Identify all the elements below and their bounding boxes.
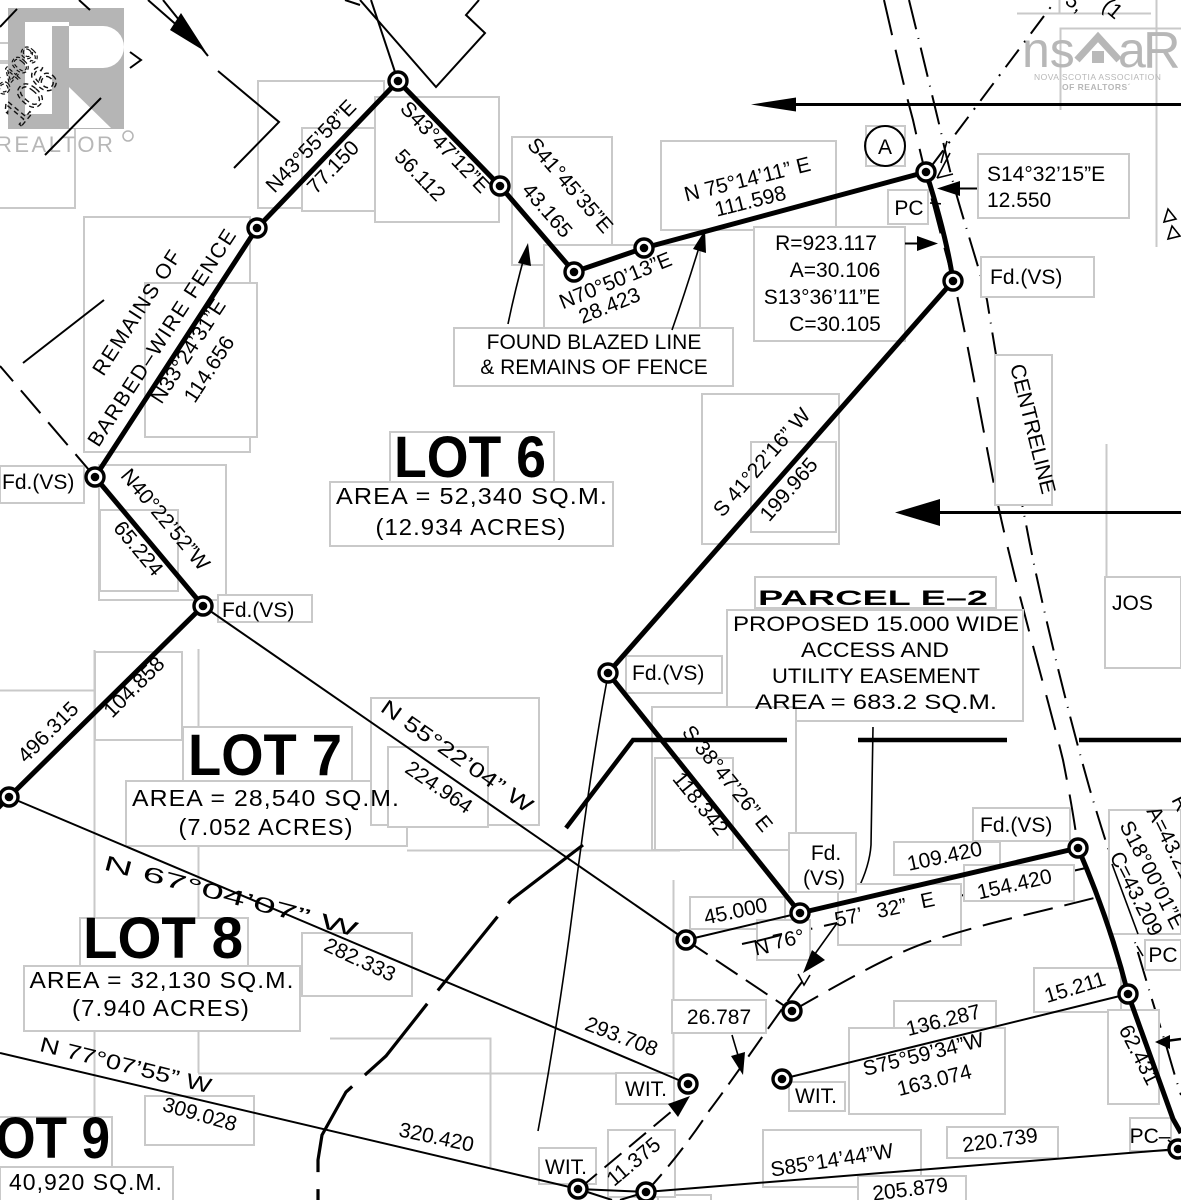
svg-text:ns: ns (1022, 22, 1075, 78)
svg-text:LOT 6: LOT 6 (394, 425, 546, 490)
svg-text:ACCESS AND: ACCESS AND (801, 639, 949, 662)
svg-text:S13°36’11”E: S13°36’11”E (764, 286, 881, 309)
svg-text:WIT.: WIT. (795, 1085, 837, 1108)
svg-text:LOT 9: LOT 9 (0, 1106, 110, 1171)
svg-text:AREA = 683.2 SQ.M.: AREA = 683.2 SQ.M. (755, 691, 997, 714)
svg-text:UTILITY EASEMENT: UTILITY EASEMENT (772, 665, 980, 688)
svg-text:Fd.(VS): Fd.(VS) (632, 662, 704, 685)
svg-text:WIT.: WIT. (625, 1078, 667, 1101)
svg-text:R=923.117: R=923.117 (775, 232, 877, 255)
svg-text:A: A (878, 136, 892, 159)
svg-text:(7.940 ACRES): (7.940 ACRES) (72, 995, 250, 1021)
svg-text:Fd.(VS): Fd.(VS) (222, 599, 294, 622)
svg-text:JOS: JOS (1112, 592, 1153, 615)
svg-text:FOUND BLAZED LINE: FOUND BLAZED LINE (487, 331, 702, 354)
svg-text:A=30.106: A=30.106 (790, 259, 881, 282)
svg-text:REALTOR: REALTOR (0, 132, 115, 157)
svg-text:(VS): (VS) (803, 867, 845, 890)
svg-text:& REMAINS OF FENCE: & REMAINS OF FENCE (480, 356, 708, 379)
svg-text:(12.934 ACRES): (12.934 ACRES) (376, 514, 567, 540)
svg-text:PC–: PC– (1130, 1125, 1171, 1148)
svg-text:AREA = 32,130 SQ.M.: AREA = 32,130 SQ.M. (30, 967, 295, 993)
svg-text:(7.052 ACRES): (7.052 ACRES) (179, 814, 354, 840)
svg-text:12.550: 12.550 (987, 189, 1051, 212)
svg-text:AREA = 28,540 SQ.M.: AREA = 28,540 SQ.M. (132, 785, 400, 811)
svg-text:40,920 SQ.M.: 40,920 SQ.M. (9, 1169, 163, 1195)
svg-text:WIT.: WIT. (545, 1156, 587, 1179)
svg-text:PARCEL E–2: PARCEL E–2 (758, 587, 988, 610)
svg-text:a: a (1118, 22, 1146, 78)
svg-text:C=30.105: C=30.105 (789, 313, 881, 336)
svg-text:LOT 7: LOT 7 (188, 723, 342, 788)
svg-text:Fd.: Fd. (811, 842, 841, 865)
svg-text:OF REALTORS´: OF REALTORS´ (1062, 82, 1131, 92)
svg-text:PC: PC (894, 197, 923, 220)
svg-text:LOT 8: LOT 8 (83, 906, 243, 971)
svg-text:S14°32’15”E: S14°32’15”E (987, 163, 1105, 186)
svg-text:26.787: 26.787 (687, 1006, 751, 1029)
svg-text:Fd.(VS): Fd.(VS) (990, 266, 1062, 289)
svg-text:Fd.(VS): Fd.(VS) (2, 471, 74, 494)
svg-text:AREA = 52,340 SQ.M.: AREA = 52,340 SQ.M. (336, 483, 608, 509)
svg-text:PROPOSED 15.000 WIDE: PROPOSED 15.000 WIDE (733, 613, 1019, 636)
svg-text:NOVA SCOTIA ASSOCIATION: NOVA SCOTIA ASSOCIATION (1034, 72, 1161, 82)
svg-text:Fd.(VS): Fd.(VS) (980, 814, 1052, 837)
svg-text:PC: PC (1148, 944, 1177, 967)
